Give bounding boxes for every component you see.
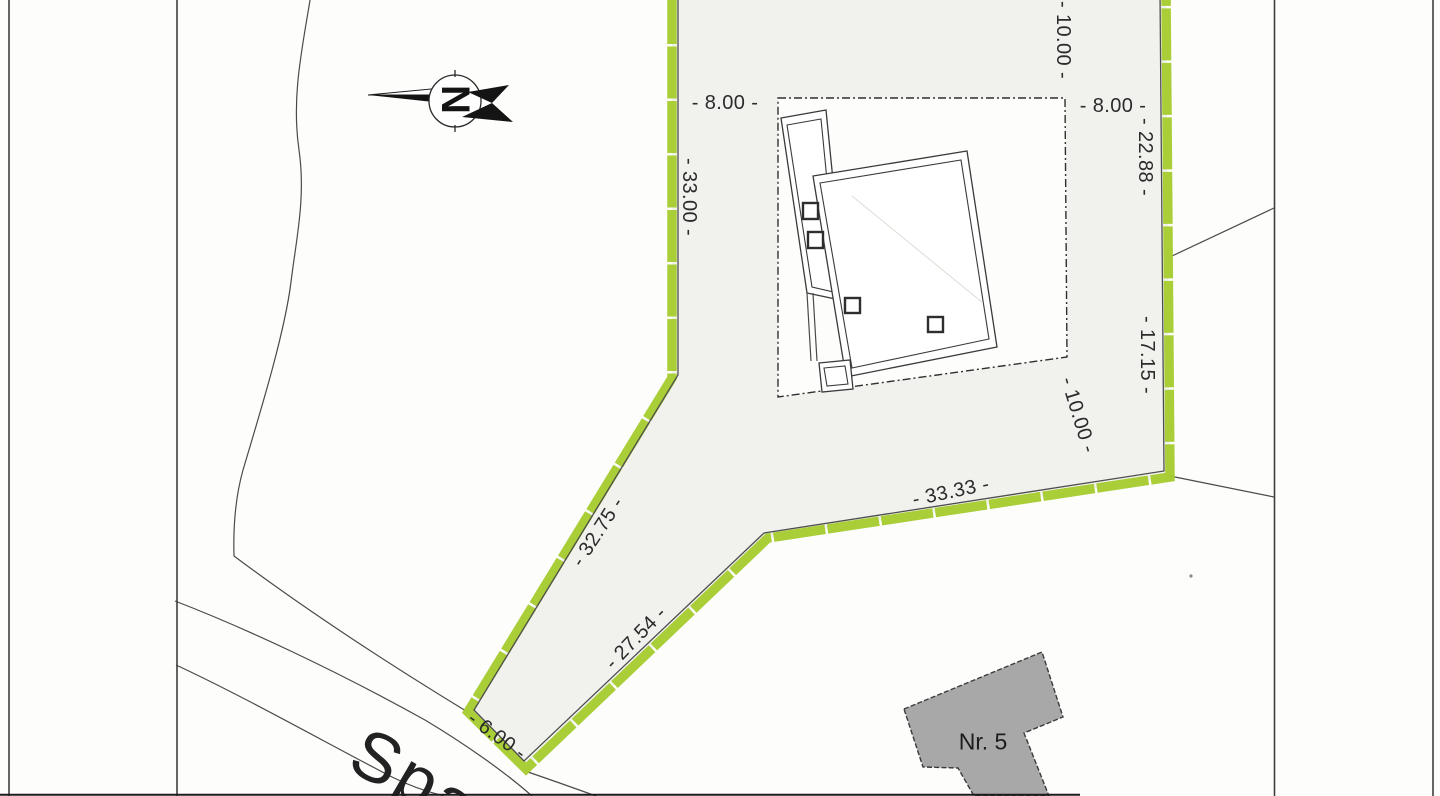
dimension-label-8-right: - 8.00 -	[1080, 95, 1147, 117]
neighbor-boundary-line	[1172, 208, 1274, 256]
dimension-label-17-15: - 17.15 -	[1136, 316, 1158, 394]
column-marker	[928, 317, 943, 332]
dimension-label-8-left: - 8.00 -	[692, 92, 759, 114]
building-number-label: Nr. 5	[959, 731, 1008, 754]
site-plan-drawing: Sparren	[0, 0, 1440, 796]
dimension-label-top-clipped: - 30.25 -	[873, 0, 951, 4]
column-marker	[803, 203, 818, 219]
dimension-label-22-88: - 22.88 -	[1134, 118, 1156, 196]
dimension-label-10-top-right: - 10.00 -	[1052, 1, 1074, 79]
neighbor-building-nr5	[904, 652, 1063, 796]
column-marker	[808, 232, 823, 248]
street-edge-line	[528, 772, 596, 796]
column-marker	[845, 298, 860, 313]
small-structure-inner-outline	[824, 366, 848, 386]
map-speck	[1189, 574, 1192, 577]
neighbor-boundary-line	[1170, 476, 1274, 497]
dimension-label-33-00: - 33.00 -	[678, 158, 700, 236]
site-plan-page: Sparren - 30.25 - - 8.00 - - 8.00 - - 10…	[0, 0, 1440, 796]
north-letter: N	[435, 85, 475, 114]
